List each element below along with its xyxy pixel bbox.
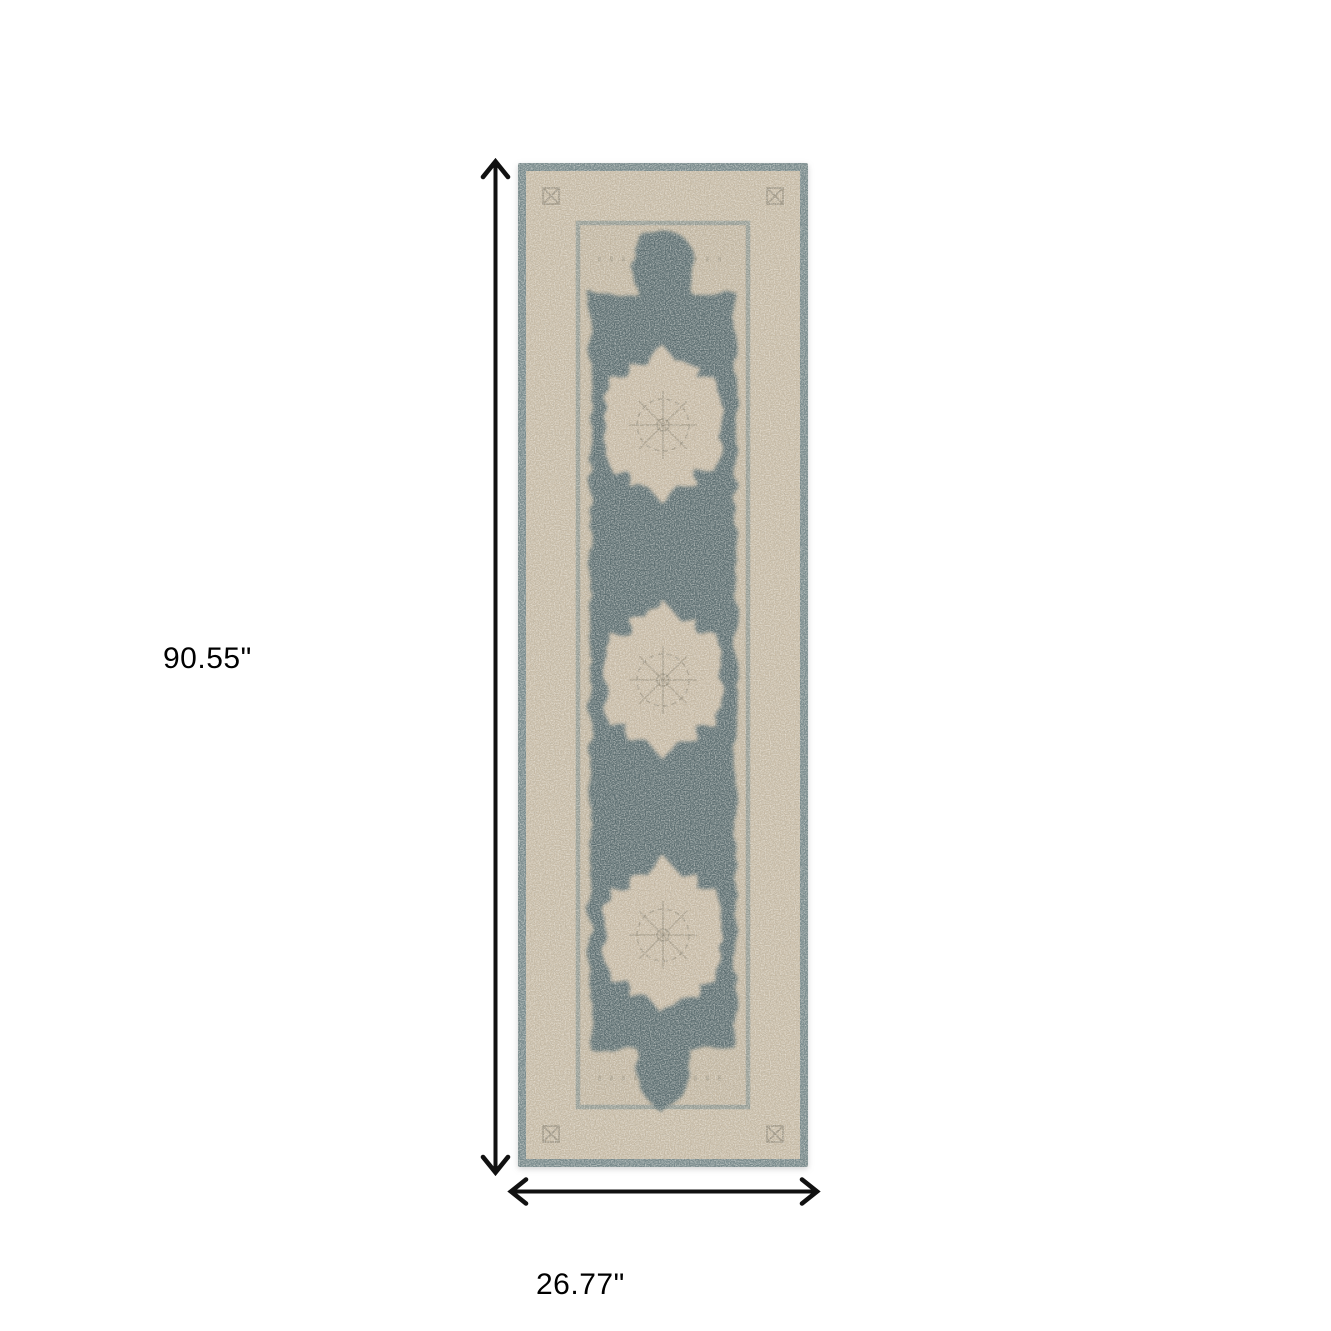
width-dimension-arrow	[503, 1175, 825, 1208]
height-dimension-label: 90.55"	[163, 644, 252, 674]
rug-illustration	[518, 163, 808, 1167]
height-dimension-arrow	[478, 153, 514, 1181]
width-dimension-label: 26.77"	[536, 1270, 625, 1300]
product-dimension-diagram: 90.55" 26.77"	[0, 0, 1331, 1331]
rug-texture-dark	[518, 163, 808, 1167]
rug-image	[518, 163, 808, 1167]
